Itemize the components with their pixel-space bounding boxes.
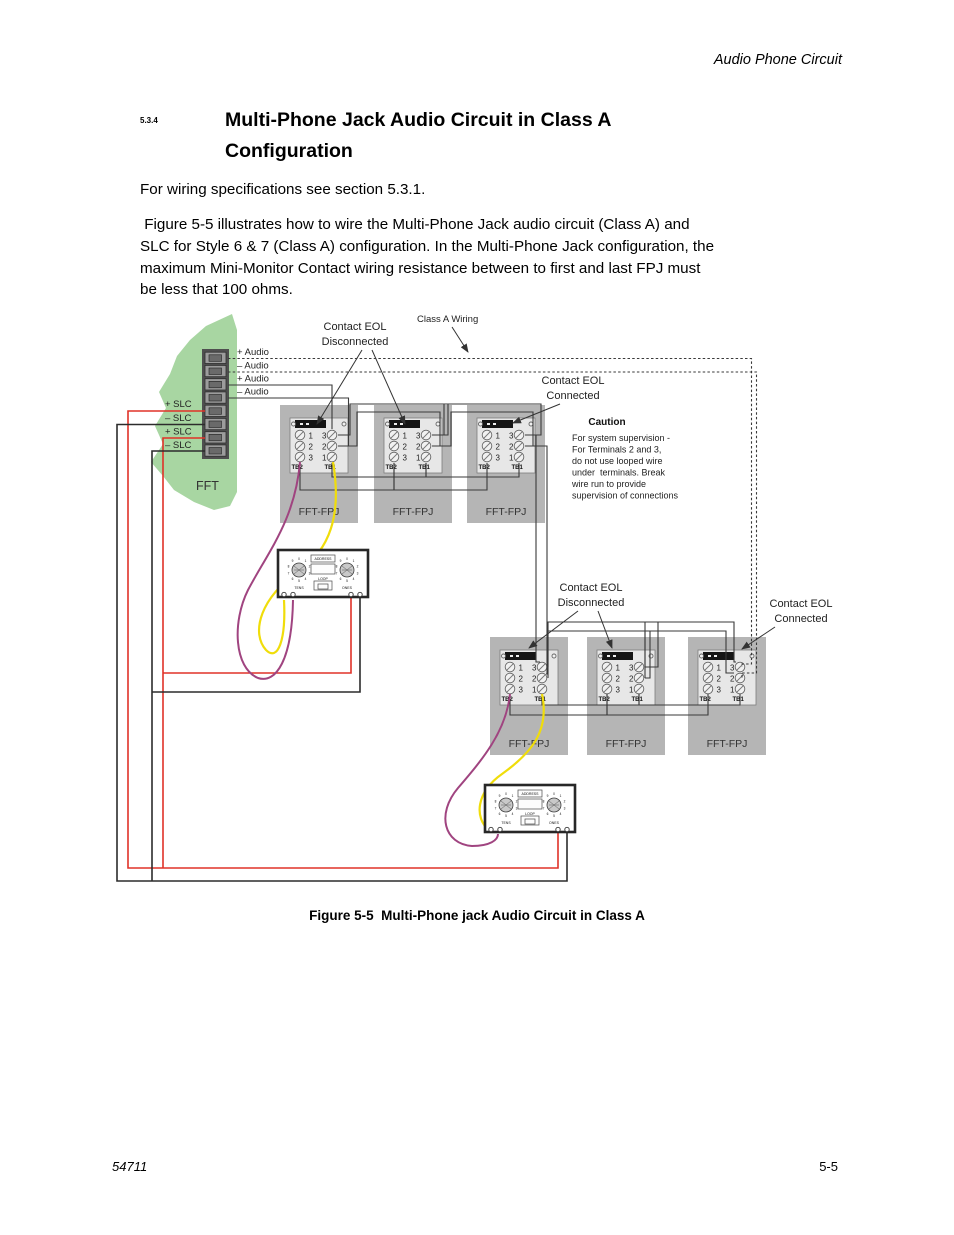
wiring-diagram: 1 2 3 3 2 1 TB2 TB1 FFT-FPJ 0123456789: [0, 300, 954, 900]
paragraph-1: For wiring specifications see section 5.…: [140, 181, 425, 198]
slc-minus-wire-2: [152, 451, 205, 881]
label-eol-connected-bottom-2: Connected: [774, 613, 827, 625]
label-eol-disconnected-bottom-2: Disconnected: [558, 597, 625, 609]
slc-plus-label-1: + SLC: [165, 399, 192, 410]
audio-minus-label-2: – Audio: [237, 387, 269, 398]
label-eol-connected-top-1: Contact EOL: [542, 375, 605, 387]
slc-minus-label-1: – SLC: [165, 413, 192, 424]
fft-label: FFT: [196, 479, 219, 493]
section-heading: 5.3.4 Multi-Phone Jack Audio Circuit in …: [140, 105, 765, 167]
label-eol-connected-bottom-1: Contact EOL: [770, 598, 833, 610]
label-eol-disconnected-bottom-1: Contact EOL: [560, 582, 623, 594]
audio-plus-label-2: + Audio: [237, 374, 269, 385]
address-device-1: [278, 550, 368, 597]
footer-doc-number: 54711: [112, 1159, 147, 1174]
label-eol-disconnected-top-2: Disconnected: [322, 336, 389, 348]
document-page: Audio Phone Circuit 5.3.4 Multi-Phone Ja…: [0, 0, 954, 1235]
section-title-line1: Multi-Phone Jack Audio Circuit in Class …: [225, 105, 765, 136]
audio-plus-label-1: + Audio: [237, 347, 269, 358]
caution-line: do not use looped wire: [572, 456, 663, 466]
label-eol-connected-top-2: Connected: [546, 390, 599, 402]
caution-line: wire run to provide: [571, 479, 646, 489]
audio-minus-label-1: – Audio: [237, 361, 269, 372]
figure-caption: Figure 5-5 Multi-Phone jack Audio Circui…: [0, 908, 954, 923]
fpj-module-5: [587, 637, 665, 755]
page-header: Audio Phone Circuit: [714, 52, 842, 68]
footer-page-number: 5-5: [819, 1159, 838, 1174]
caution-line: For Terminals 2 and 3,: [572, 445, 661, 455]
slc-plus-branch: [163, 598, 351, 673]
fft-block: FFT: [151, 314, 237, 510]
fpj-module-6: [688, 637, 766, 755]
section-title: Multi-Phone Jack Audio Circuit in Class …: [225, 105, 765, 167]
caution-line: under terminals. Break: [572, 468, 666, 478]
caution-title: Caution: [588, 417, 625, 428]
label-class-a-wiring: Class A Wiring: [417, 314, 478, 325]
slc-minus-label-2: – SLC: [165, 440, 192, 451]
section-number: 5.3.4: [140, 105, 158, 136]
caution-line: For system supervision -: [572, 433, 670, 443]
caution-line: supervision of connections: [572, 491, 679, 501]
section-title-line2: Configuration: [225, 136, 765, 167]
slc-plus-label-2: + SLC: [165, 427, 192, 438]
label-eol-disconnected-top-1: Contact EOL: [324, 321, 387, 333]
fpj-module-4: [490, 637, 568, 755]
address-device-2: [485, 785, 575, 832]
paragraph-2: Figure 5-5 illustrates how to wire the M…: [140, 214, 930, 301]
